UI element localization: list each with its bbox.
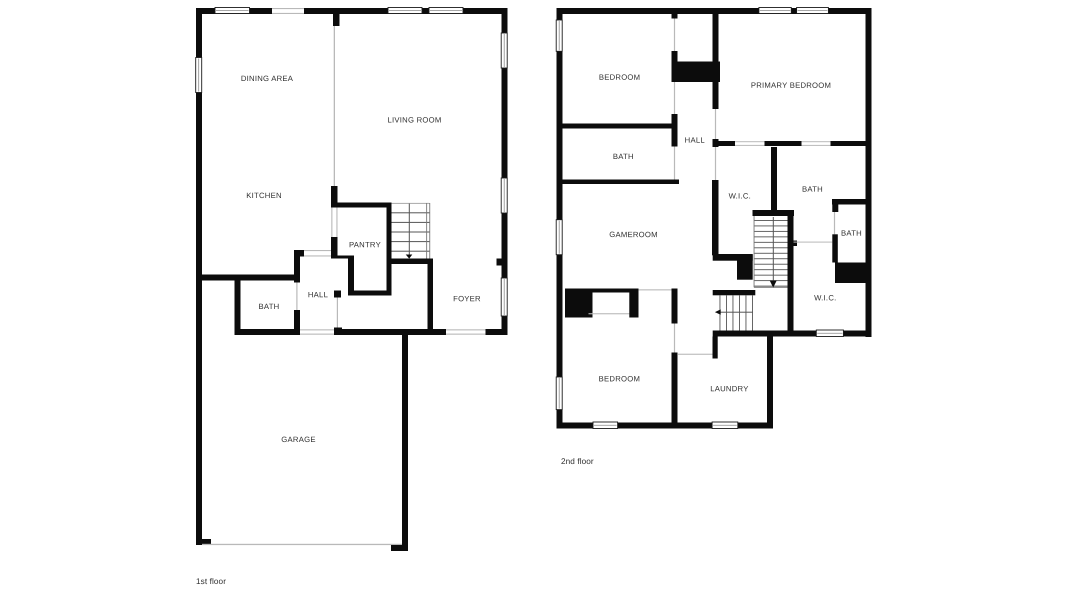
svg-text:BEDROOM: BEDROOM: [599, 374, 640, 383]
svg-text:DINING AREA: DINING AREA: [241, 74, 294, 83]
svg-text:PRIMARY BEDROOM: PRIMARY BEDROOM: [751, 81, 831, 90]
svg-text:BATH: BATH: [613, 152, 634, 161]
svg-text:1st floor: 1st floor: [196, 577, 226, 586]
svg-text:BATH: BATH: [259, 302, 280, 311]
svg-text:GARAGE: GARAGE: [281, 435, 315, 444]
svg-text:LIVING ROOM: LIVING ROOM: [387, 115, 441, 124]
svg-text:2nd floor: 2nd floor: [561, 457, 594, 466]
svg-text:BATH: BATH: [841, 229, 862, 238]
svg-text:W.I.C.: W.I.C.: [814, 293, 836, 302]
svg-text:LAUNDRY: LAUNDRY: [710, 384, 748, 393]
svg-text:BATH: BATH: [802, 185, 823, 194]
svg-text:GAMEROOM: GAMEROOM: [609, 230, 658, 239]
svg-text:BEDROOM: BEDROOM: [599, 73, 640, 82]
svg-text:HALL: HALL: [308, 290, 329, 299]
svg-text:KITCHEN: KITCHEN: [246, 191, 282, 200]
svg-text:W.I.C.: W.I.C.: [729, 191, 751, 200]
svg-text:PANTRY: PANTRY: [349, 240, 381, 249]
svg-text:FOYER: FOYER: [453, 294, 481, 303]
svg-text:HALL: HALL: [685, 136, 706, 145]
